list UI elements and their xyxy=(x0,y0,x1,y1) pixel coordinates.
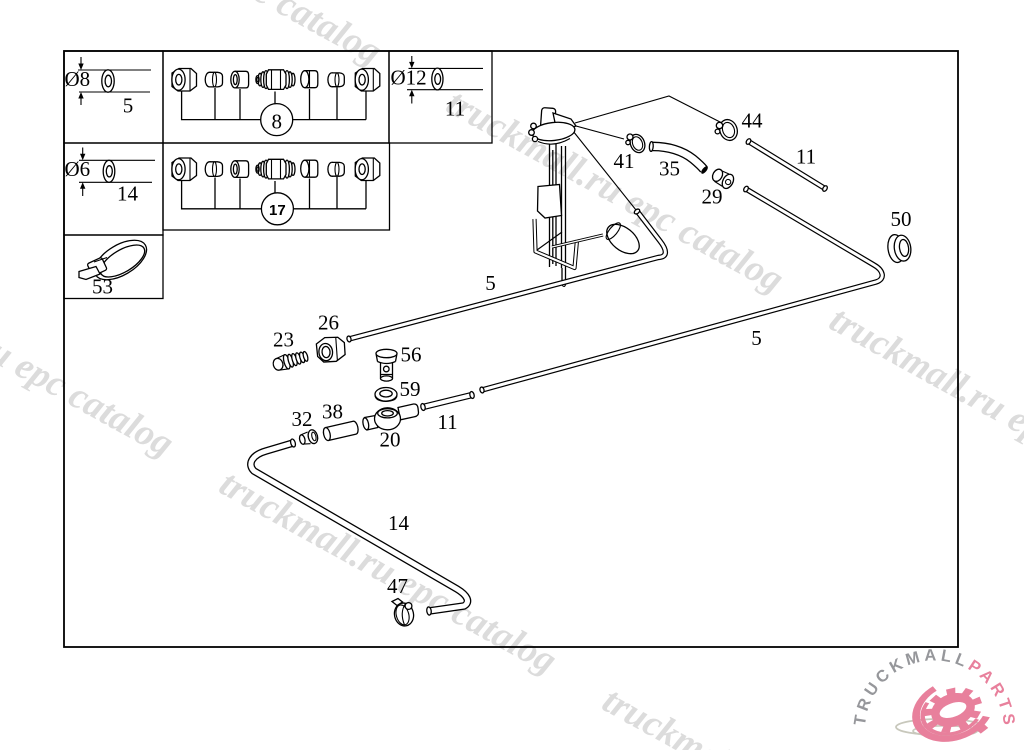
svg-text:5: 5 xyxy=(751,326,762,350)
svg-text:8: 8 xyxy=(271,110,282,134)
svg-text:Ø12: Ø12 xyxy=(391,66,427,90)
svg-text:26: 26 xyxy=(318,311,339,335)
svg-text:20: 20 xyxy=(380,428,401,452)
svg-text:17: 17 xyxy=(269,202,286,219)
svg-text:38: 38 xyxy=(322,400,343,424)
svg-text:Ø8: Ø8 xyxy=(65,67,91,91)
svg-text:59: 59 xyxy=(400,377,421,401)
svg-text:44: 44 xyxy=(742,109,764,133)
svg-text:50: 50 xyxy=(891,207,912,231)
svg-text:11: 11 xyxy=(445,97,465,121)
svg-text:41: 41 xyxy=(614,149,635,173)
svg-text:11: 11 xyxy=(796,145,816,169)
svg-text:23: 23 xyxy=(273,328,294,352)
svg-text:14: 14 xyxy=(388,511,410,535)
svg-text:11: 11 xyxy=(437,410,457,434)
svg-text:5: 5 xyxy=(485,271,496,295)
svg-text:35: 35 xyxy=(659,157,680,181)
svg-text:53: 53 xyxy=(92,275,113,299)
svg-text:32: 32 xyxy=(292,407,313,431)
svg-text:29: 29 xyxy=(702,185,723,209)
svg-text:14: 14 xyxy=(117,182,139,206)
svg-text:47: 47 xyxy=(387,574,408,598)
svg-text:56: 56 xyxy=(401,343,422,367)
svg-text:Ø6: Ø6 xyxy=(65,157,91,181)
svg-text:5: 5 xyxy=(123,94,134,118)
